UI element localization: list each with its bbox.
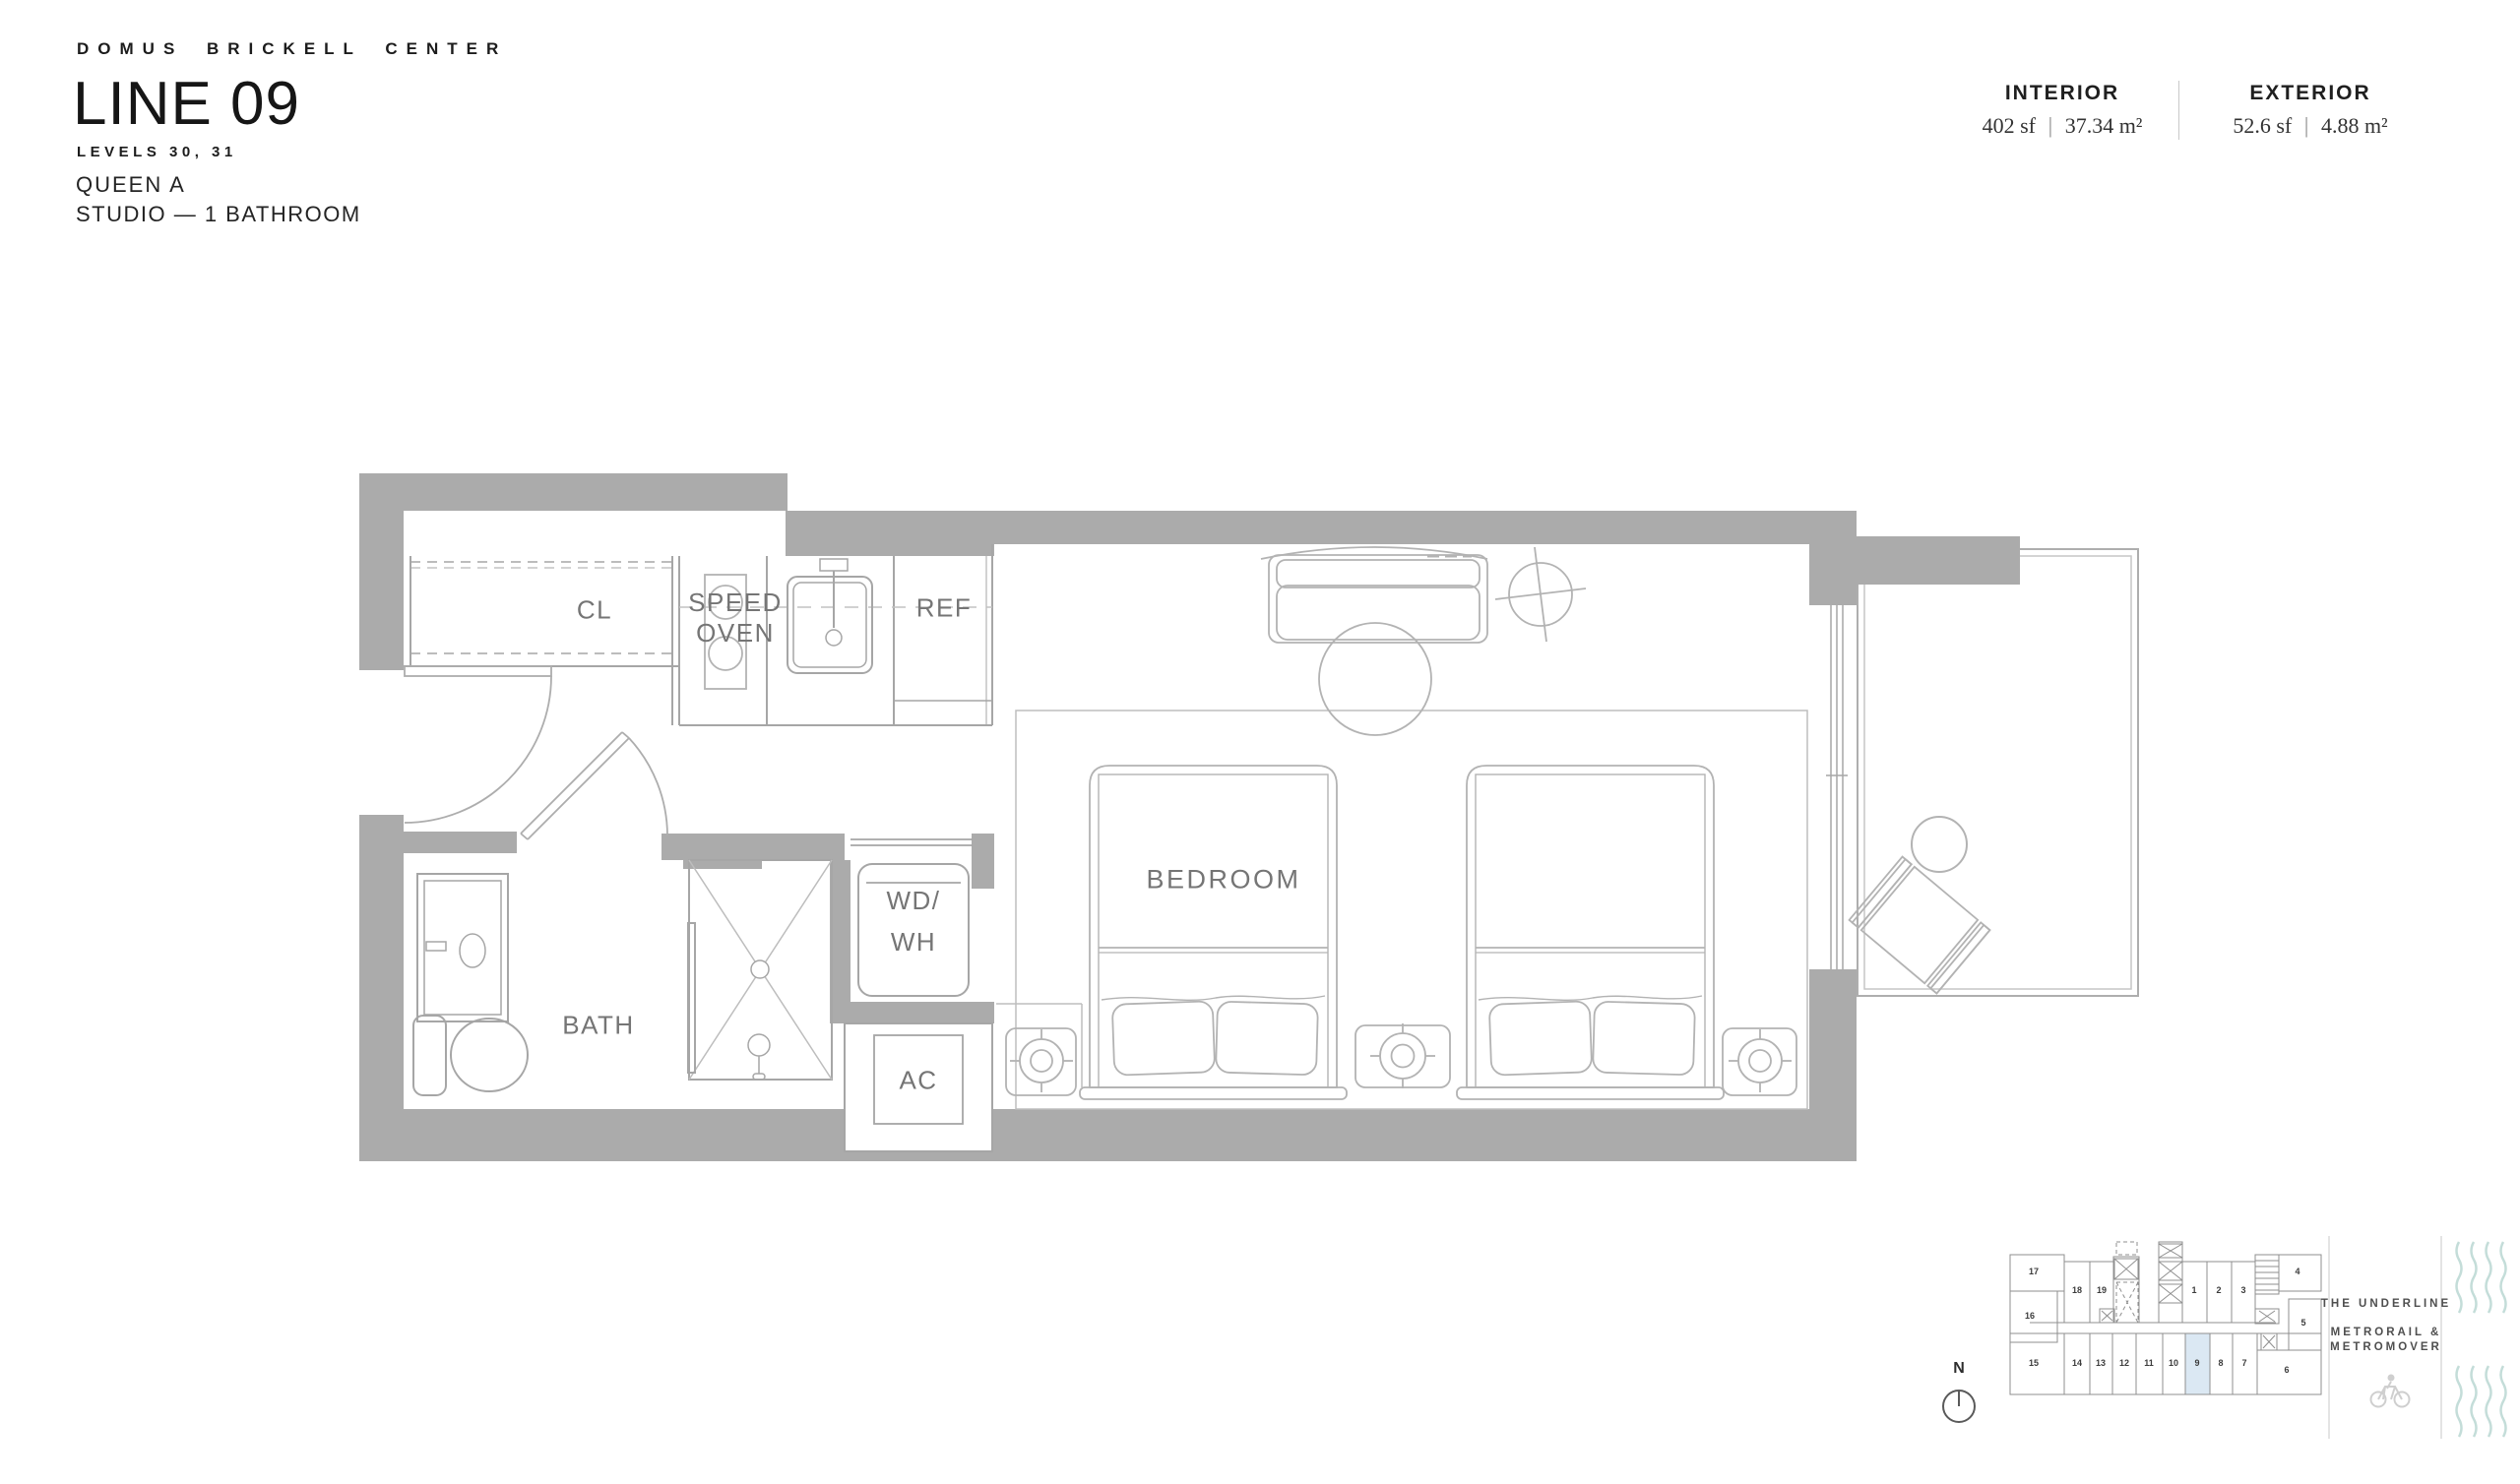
interior-sqm: 37.34 m² [2065,113,2143,138]
nightstands [1006,1023,1796,1095]
keyplan-unit-11: 11 [2144,1358,2154,1368]
keyplan-unit-19: 19 [2097,1285,2107,1295]
area-stats: INTERIOR 402 sf|37.34 m² EXTERIOR 52.6 s… [1954,81,2433,140]
keyplan-unit-1: 1 [2191,1285,2196,1295]
project-name: DOMUS BRICKELL CENTER [77,39,507,59]
bath-label: BATH [562,1011,634,1041]
bathroom-door [521,732,667,839]
ceiling-light-symbol [1495,547,1586,642]
ac-label: AC [899,1066,937,1096]
closet-label: CL [577,595,612,626]
balcony-chair-icon [1850,857,1990,994]
keyplan-unit-3: 3 [2240,1285,2245,1295]
speed-oven-label: SPEEDOVEN [688,587,783,649]
window-wall [1826,605,1848,969]
shower-icon [688,860,832,1080]
keyplan-unit-6: 6 [2284,1365,2289,1375]
keyplan-unit-18: 18 [2072,1285,2082,1295]
unit-type: STUDIO — 1 BATHROOM [76,202,361,227]
north-label: N [1953,1360,1965,1378]
keyplan-unit-8: 8 [2218,1358,2223,1368]
entry-door [405,666,551,823]
pillow-icon [1216,1002,1318,1076]
levels-label: LEVELS 30, 31 [77,144,237,160]
keyplan-unit-9: 9 [2194,1358,2199,1368]
metrorail-caption: METRORAIL &METROMOVER [2330,1326,2442,1355]
elevator-icon [2159,1242,2182,1323]
exterior-area: EXTERIOR 52.6 sf|4.88 m² [2187,82,2433,139]
balcony-table-icon [1912,817,1967,872]
keyplan-unit-17: 17 [2029,1267,2039,1276]
pillow-icon [1489,1001,1592,1076]
toilet-icon [413,1016,528,1095]
balcony [1850,549,2138,996]
water-waves-icon [2457,1242,2506,1437]
keyplan-unit-4: 4 [2295,1267,2299,1276]
keyplan-unit-12: 12 [2119,1358,2129,1368]
stairs-icon [2255,1255,2279,1294]
page-title: LINE 09 [73,69,300,139]
exterior-sf: 52.6 sf [2233,113,2292,138]
interior-label: INTERIOR [1954,82,2171,105]
sink-icon [787,559,872,673]
keyplan-unit-10: 10 [2169,1358,2178,1368]
value-separator: | [2292,113,2321,138]
stats-divider [2178,81,2179,140]
value-separator: | [2036,113,2065,138]
keyplan-unit-5: 5 [2300,1318,2305,1328]
cyclist-icon [2371,1375,2410,1407]
keyplan-unit-7: 7 [2241,1358,2246,1368]
unit-name: QUEEN A [76,172,186,198]
bedroom-label: BEDROOM [1146,865,1300,896]
floorplan-sheet: DOMUS BRICKELL CENTER LINE 09 LEVELS 30,… [0,0,2520,1484]
bedroom-floor [996,711,1807,1109]
exterior-sqm: 4.88 m² [2321,113,2388,138]
washer-label: WD/WH [886,880,940,962]
pillow-icon [1112,1001,1215,1076]
vanity-sink-icon [417,874,508,1021]
keyplan-unit-15: 15 [2029,1358,2039,1368]
fridge-label: REF [916,593,973,624]
sofa-icon [1261,547,1487,643]
interior-area: INTERIOR 402 sf|37.34 m² [1954,82,2171,139]
entry-closet [404,556,679,666]
bed-2-icon [1457,766,1724,1099]
keyplan-unit-16: 16 [2025,1311,2035,1321]
keyplan-unit-13: 13 [2096,1358,2106,1368]
exterior-label: EXTERIOR [2187,82,2433,105]
floor-plan-drawing [0,0,2520,1484]
key-plan [2010,1242,2321,1394]
elevator-icon [2100,1242,2138,1323]
keyplan-unit-14: 14 [2072,1358,2082,1368]
interior-sf: 402 sf [1983,113,2036,138]
bathroom [413,860,832,1095]
north-arrow-icon [1943,1391,1975,1422]
pillow-icon [1593,1002,1695,1076]
bed-1-icon [1080,766,1347,1099]
underline-caption: THE UNDERLINE [2321,1298,2451,1310]
keyplan-unit-2: 2 [2216,1285,2221,1295]
